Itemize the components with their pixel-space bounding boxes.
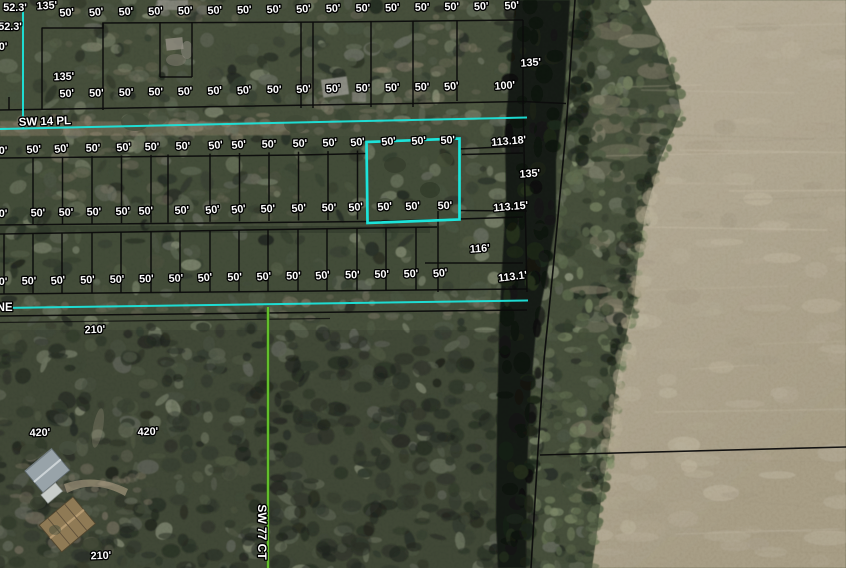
svg-text:50': 50' (377, 200, 393, 213)
svg-text:50': 50' (208, 139, 224, 153)
svg-text:LANE: LANE (0, 302, 13, 314)
svg-text:50': 50' (374, 269, 389, 281)
svg-text:50': 50' (432, 267, 448, 281)
svg-text:50': 50' (444, 80, 460, 94)
svg-text:50': 50' (59, 6, 75, 19)
svg-text:50': 50' (237, 4, 253, 17)
svg-text:50': 50' (231, 203, 247, 217)
svg-text:116': 116' (469, 242, 490, 255)
svg-text:50': 50' (138, 205, 154, 218)
svg-text:50': 50' (345, 269, 360, 281)
svg-text:50': 50' (148, 5, 164, 18)
svg-text:50': 50' (348, 201, 364, 214)
svg-text:50': 50' (0, 145, 8, 157)
svg-text:50': 50' (0, 276, 8, 288)
svg-text:50': 50' (350, 136, 366, 150)
svg-text:50': 50' (80, 274, 96, 287)
svg-text:50': 50' (168, 272, 183, 285)
svg-text:50': 50' (381, 135, 397, 149)
svg-text:50': 50' (411, 135, 427, 148)
svg-text:50': 50' (178, 5, 194, 18)
svg-text:50': 50' (267, 84, 282, 96)
svg-text:50': 50' (385, 81, 401, 94)
svg-text:50': 50' (355, 2, 370, 15)
svg-text:50': 50' (227, 271, 242, 284)
svg-text:50': 50' (145, 141, 160, 153)
svg-text:50': 50' (296, 83, 312, 96)
svg-text:50': 50' (296, 3, 312, 16)
svg-text:135': 135' (520, 56, 542, 69)
svg-text:50': 50' (286, 270, 301, 282)
svg-text:50': 50' (54, 142, 70, 156)
svg-text:50': 50' (504, 0, 520, 13)
svg-text:210': 210' (84, 324, 105, 337)
svg-text:52.3': 52.3' (0, 21, 22, 33)
svg-text:50': 50' (356, 82, 371, 94)
svg-text:50': 50' (88, 6, 104, 20)
svg-text:50': 50' (205, 203, 221, 217)
svg-text:50': 50' (148, 86, 163, 98)
svg-text:210': 210' (90, 550, 111, 563)
svg-text:50': 50' (0, 208, 8, 220)
svg-text:50': 50' (405, 200, 421, 213)
svg-text:50': 50' (385, 2, 401, 15)
svg-text:SW 14 PL: SW 14 PL (18, 115, 71, 129)
svg-text:50': 50' (50, 274, 66, 288)
svg-text:50': 50' (437, 200, 452, 213)
svg-text:135': 135' (519, 167, 541, 180)
svg-text:50': 50' (266, 3, 282, 16)
svg-text:50': 50' (119, 87, 134, 99)
svg-text:50': 50' (415, 1, 430, 13)
svg-text:50': 50' (231, 139, 247, 152)
svg-text:50': 50' (256, 270, 272, 283)
svg-text:50': 50' (59, 207, 74, 219)
svg-text:50': 50' (26, 143, 42, 156)
svg-text:50': 50' (403, 268, 419, 281)
svg-text:50': 50' (444, 1, 459, 13)
svg-text:50': 50' (30, 207, 45, 220)
svg-text:50': 50' (174, 204, 190, 217)
svg-text:50': 50' (236, 84, 252, 98)
svg-text:50': 50' (440, 134, 456, 147)
svg-text:50': 50' (260, 203, 276, 216)
svg-text:SW 77 CT: SW 77 CT (255, 504, 269, 560)
svg-text:50': 50' (315, 269, 331, 283)
svg-text:52.3': 52.3' (3, 2, 27, 14)
svg-text:50': 50' (86, 206, 101, 219)
svg-text:50': 50' (139, 273, 154, 286)
svg-text:50': 50' (175, 140, 190, 153)
svg-text:100': 100' (494, 79, 516, 92)
svg-text:135': 135' (36, 0, 58, 13)
svg-text:50': 50' (115, 205, 131, 218)
svg-text:50': 50' (415, 81, 430, 94)
svg-text:50': 50' (207, 85, 223, 98)
svg-text:50': 50' (86, 142, 101, 154)
svg-text:420': 420' (137, 426, 158, 439)
svg-text:50': 50' (291, 202, 307, 215)
svg-text:135': 135' (53, 71, 74, 84)
svg-text:50': 50' (89, 87, 104, 100)
svg-text:50': 50' (110, 274, 125, 287)
svg-text:50': 50' (262, 138, 277, 150)
svg-text:50': 50' (207, 4, 223, 17)
svg-text:50': 50' (116, 141, 132, 154)
svg-text:50': 50' (197, 271, 213, 285)
svg-text:50': 50' (322, 137, 338, 150)
svg-text:50': 50' (118, 6, 134, 19)
svg-text:50': 50' (22, 275, 37, 287)
svg-text:50': 50' (474, 0, 490, 13)
svg-text:50': 50' (326, 2, 342, 15)
svg-text:50': 50' (177, 85, 193, 98)
svg-text:50': 50' (59, 87, 75, 100)
svg-text:420': 420' (29, 427, 50, 440)
svg-text:50': 50' (292, 138, 307, 151)
svg-text:50': 50' (0, 41, 8, 53)
svg-text:50': 50' (326, 82, 342, 95)
svg-text:50': 50' (322, 202, 337, 214)
